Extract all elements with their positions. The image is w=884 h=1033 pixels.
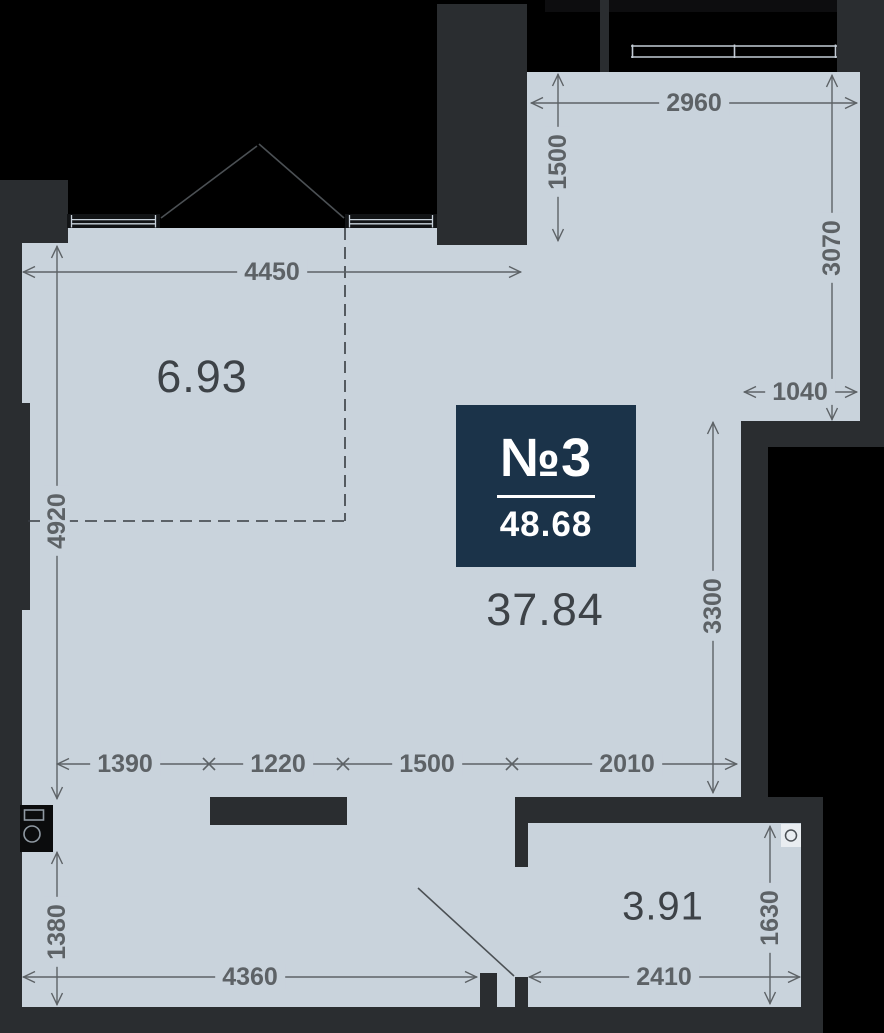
plan-geometry: [0, 0, 884, 1033]
kitchen-shaft-icon: [20, 805, 53, 852]
balcony-door-swing: [161, 144, 344, 218]
unit-badge: №3 48.68: [456, 405, 636, 567]
window-right: [345, 214, 437, 228]
bathroom-vent-icon: [781, 824, 801, 847]
dim-right-upper-height: 3070: [819, 213, 845, 283]
dim-alcove-depth: 1500: [545, 127, 571, 197]
bathroom-door-swing: [418, 888, 514, 976]
dim-chain-1220: 1220: [243, 751, 313, 777]
area-main-room: 37.84: [486, 584, 604, 636]
dim-bathroom-height: 1630: [757, 883, 783, 953]
dim-chain-1390: 1390: [90, 751, 160, 777]
dim-bottom-width: 4360: [215, 964, 285, 990]
dim-alcove-width: 2960: [659, 90, 729, 116]
dim-lower-left-height: 1380: [44, 897, 70, 967]
unit-number: №3: [500, 431, 592, 485]
floor-plan: 2960 1500 3070 1040 4450 4920 3300 1390 …: [0, 0, 884, 1033]
dim-right-lower-height: 3300: [700, 571, 726, 641]
window-left: [67, 214, 160, 228]
dimension-lines: [23, 74, 857, 1005]
alcove-window: [631, 45, 837, 59]
area-bathroom: 3.91: [622, 885, 704, 930]
dim-chain-1500: 1500: [392, 751, 462, 777]
dim-bathroom-width: 2410: [629, 964, 699, 990]
dim-left-height: 4920: [44, 486, 70, 556]
dim-right-niche-width: 1040: [765, 379, 835, 405]
dim-chain-2010: 2010: [592, 751, 662, 777]
unit-total-area: 48.68: [500, 507, 593, 542]
dim-upper-width: 4450: [237, 259, 307, 285]
area-zone: 6.93: [156, 351, 248, 403]
badge-divider: [497, 495, 595, 498]
